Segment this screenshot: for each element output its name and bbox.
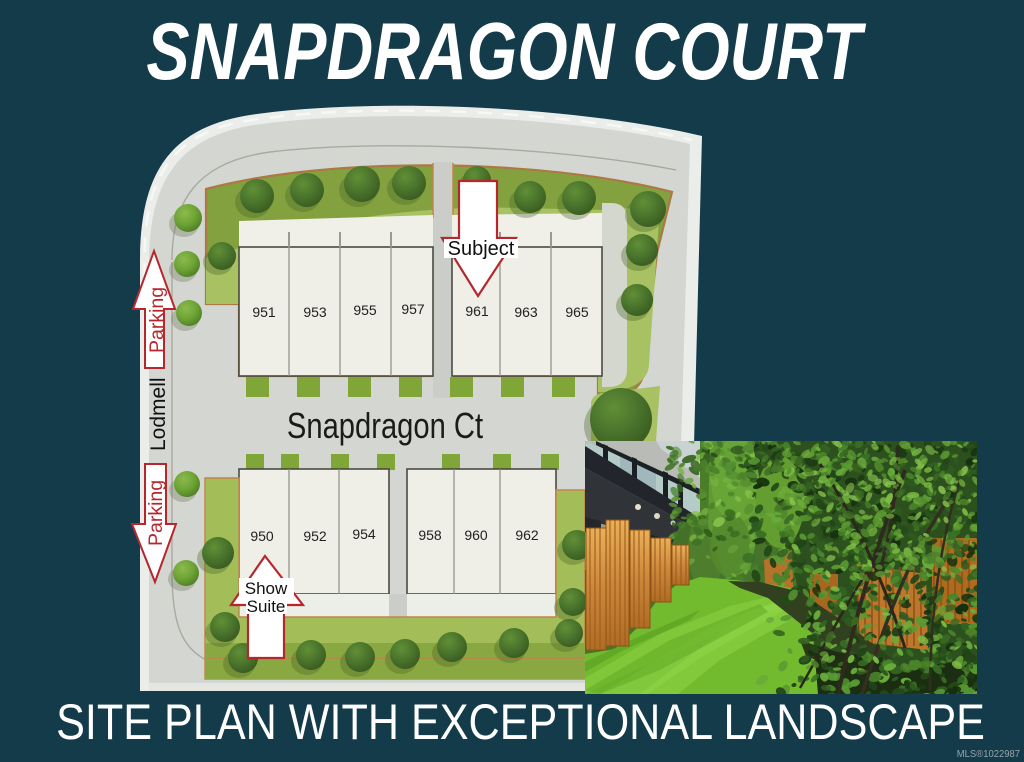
svg-text:963: 963 [514,304,538,320]
svg-text:952: 952 [303,528,327,544]
svg-text:957: 957 [401,301,425,317]
svg-text:953: 953 [303,304,327,320]
svg-text:961: 961 [465,303,489,319]
svg-text:Show: Show [245,579,288,598]
svg-text:Parking: Parking [145,480,167,546]
svg-text:Snapdragon Ct: Snapdragon Ct [287,405,483,446]
svg-text:950: 950 [250,528,274,544]
svg-text:Subject: Subject [448,238,515,260]
svg-text:951: 951 [252,304,276,320]
svg-text:Lodmell: Lodmell [147,377,170,451]
svg-text:955: 955 [353,302,377,318]
svg-text:Parking: Parking [146,287,168,353]
svg-text:958: 958 [418,527,442,543]
svg-text:962: 962 [515,527,539,543]
svg-text:965: 965 [565,304,589,320]
svg-text:954: 954 [352,526,376,542]
svg-text:Suite: Suite [247,597,286,616]
svg-text:960: 960 [464,527,488,543]
